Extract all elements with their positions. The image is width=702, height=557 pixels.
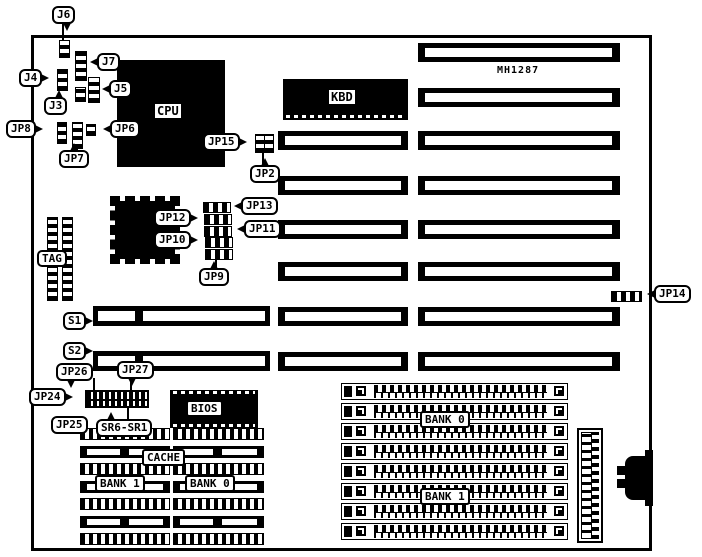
callout-j6: J6 <box>52 6 75 24</box>
callout-j3: J3 <box>44 97 67 115</box>
vlb-slot-s1 <box>93 306 270 326</box>
simm-slot <box>341 383 568 400</box>
simm-bank0-label: BANK 0 <box>420 411 470 428</box>
simm-slot <box>341 523 568 540</box>
isa-slot <box>278 262 408 281</box>
simm-slot <box>341 463 568 480</box>
isa-slot <box>418 262 620 281</box>
callout-s1: S1 <box>63 312 86 330</box>
isa-slot <box>418 352 620 371</box>
callout-jp13: JP13 <box>241 197 278 215</box>
j4-jumper-pins <box>57 69 68 91</box>
j3-jumper-pins <box>75 87 86 102</box>
cache-label: CACHE <box>142 449 185 466</box>
motherboard-diagram: MH1287 CPU KBD TAG BIOS <box>0 0 702 557</box>
jp9-jumper-pins <box>205 249 233 260</box>
kbd-label: KBD <box>329 90 355 104</box>
din-pin-block <box>617 466 626 475</box>
callout-s2: S2 <box>63 342 86 360</box>
jp10-jumper-pins <box>205 237 233 248</box>
isa-slot <box>418 307 620 326</box>
isa-slot <box>278 176 408 195</box>
callout-jp10: JP10 <box>154 231 191 249</box>
jp13-jumper-pins <box>203 202 231 213</box>
simm-slot <box>341 443 568 460</box>
callout-j4: J4 <box>19 69 42 87</box>
jp24-jumper-block <box>85 390 149 408</box>
board-model-text: MH1287 <box>497 65 539 76</box>
callout-jp14: JP14 <box>654 285 691 303</box>
isa-slot <box>278 131 408 150</box>
j6-jumper-pins <box>59 40 70 58</box>
keyboard-din-connector-base <box>645 450 653 506</box>
jp6-jumper-pins <box>86 124 96 136</box>
j5-jumper-pins <box>88 77 100 103</box>
j7-jumper-pins <box>75 51 87 81</box>
jp26-lead-line <box>93 378 95 390</box>
bios-label: BIOS <box>186 400 223 417</box>
isa-slot <box>278 220 408 239</box>
jp8-jumper-pins <box>57 122 67 144</box>
power-connector <box>577 428 603 543</box>
callout-jp15: JP15 <box>203 133 240 151</box>
callout-jp12: JP12 <box>154 209 191 227</box>
isa-slot <box>418 131 620 150</box>
cache-bank0-label: BANK 0 <box>185 475 235 492</box>
simm-bank1-label: BANK 1 <box>420 488 470 505</box>
callout-j7: J7 <box>97 53 120 71</box>
jp11-jumper-pins <box>204 226 232 237</box>
tag-label: TAG <box>37 250 67 267</box>
isa-slot <box>278 307 408 326</box>
callout-jp24: JP24 <box>29 388 66 406</box>
jp2-jumper-pins <box>264 134 274 153</box>
callout-jp26: JP26 <box>56 363 93 381</box>
simm-slot <box>341 503 568 520</box>
jp14-jumper-pins <box>611 291 642 302</box>
callout-jp7: JP7 <box>59 150 89 168</box>
isa-slot <box>418 88 620 107</box>
callout-jp9: JP9 <box>199 268 229 286</box>
callout-j5: J5 <box>109 80 132 98</box>
callout-jp6: JP6 <box>110 120 140 138</box>
callout-jp8: JP8 <box>6 120 36 138</box>
cache-bank1-label: BANK 1 <box>95 475 145 492</box>
callout-jp25: JP25 <box>51 416 88 434</box>
isa-slot <box>418 43 620 62</box>
din-pin-block <box>617 479 626 488</box>
callout-jp2: JP2 <box>250 165 280 183</box>
isa-slot <box>418 220 620 239</box>
callout-sr6-sr1: SR6-SR1 <box>96 419 152 437</box>
callout-jp27: JP27 <box>117 361 154 379</box>
chipset-qfp-chip <box>110 196 180 264</box>
callout-jp11: JP11 <box>244 220 281 238</box>
jp12-jumper-pins <box>204 214 232 225</box>
cpu-label: CPU <box>155 104 181 118</box>
isa-slot <box>278 352 408 371</box>
isa-slot <box>418 176 620 195</box>
